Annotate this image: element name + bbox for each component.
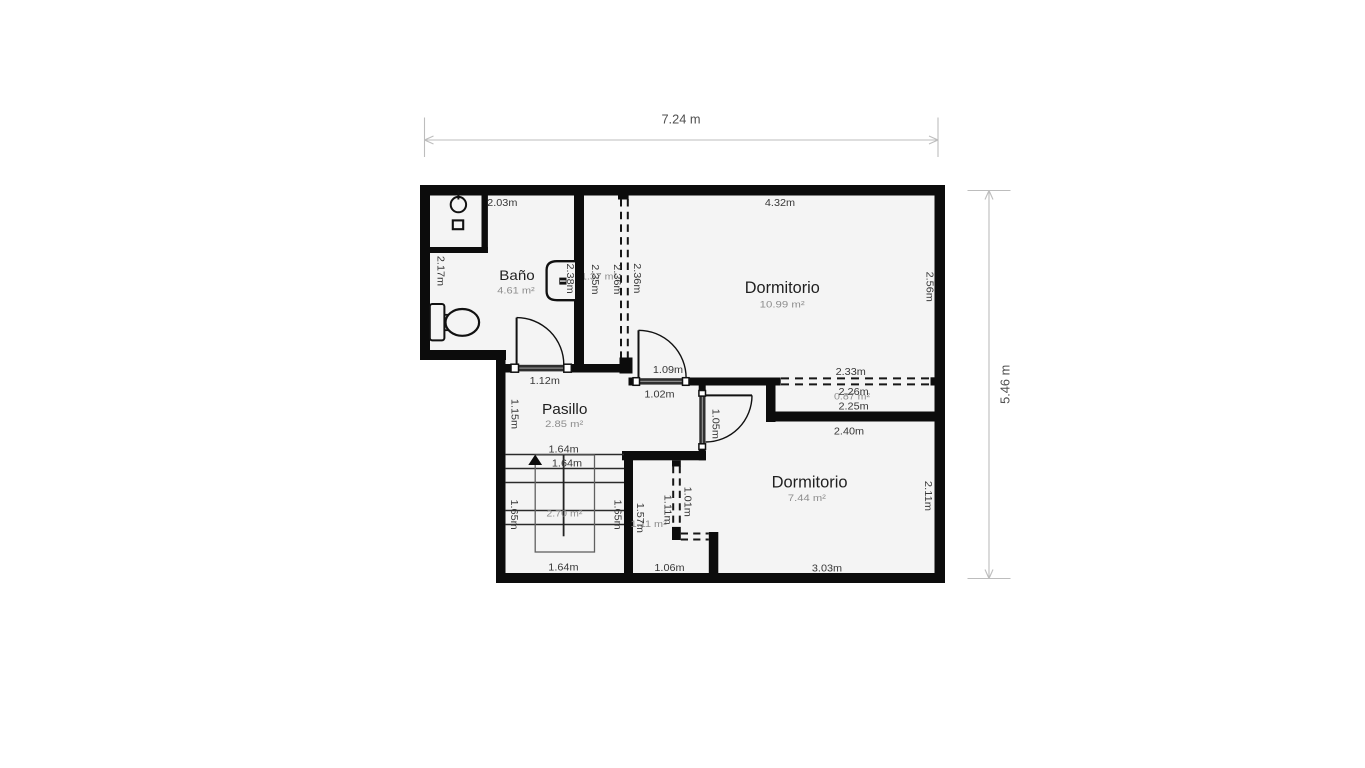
svg-text:10.99 m²: 10.99 m²	[760, 299, 806, 310]
svg-text:2.36m: 2.36m	[611, 264, 622, 294]
svg-text:2.35m: 2.35m	[589, 264, 600, 294]
svg-text:1.64m: 1.64m	[548, 563, 578, 574]
svg-text:2.11m: 2.11m	[922, 481, 933, 511]
svg-text:3.03m: 3.03m	[812, 564, 842, 575]
svg-text:2.56m: 2.56m	[923, 272, 934, 302]
svg-text:1.65m: 1.65m	[612, 500, 623, 530]
svg-text:1.09m: 1.09m	[653, 365, 683, 376]
svg-text:2.38m: 2.38m	[564, 264, 575, 294]
svg-text:7.44 m²: 7.44 m²	[788, 493, 827, 504]
svg-text:1.57m: 1.57m	[634, 503, 645, 533]
svg-text:5.46 m: 5.46 m	[998, 365, 1013, 404]
svg-text:1.11m: 1.11m	[662, 495, 673, 525]
svg-text:1.02m: 1.02m	[644, 389, 674, 400]
svg-text:Pasillo: Pasillo	[542, 401, 587, 418]
svg-text:1.05m: 1.05m	[709, 409, 720, 439]
svg-text:2.25m: 2.25m	[839, 401, 869, 412]
svg-text:2.85 m²: 2.85 m²	[545, 419, 584, 430]
svg-text:Dormitorio: Dormitorio	[772, 473, 848, 492]
svg-text:2.03m: 2.03m	[487, 198, 517, 209]
svg-text:4.61 m²: 4.61 m²	[497, 286, 535, 297]
svg-text:2.36m: 2.36m	[631, 263, 642, 293]
svg-text:Dormitorio: Dormitorio	[745, 279, 820, 297]
svg-text:7.24 m: 7.24 m	[661, 112, 700, 127]
svg-text:2.40m: 2.40m	[834, 426, 864, 437]
svg-text:1.65m: 1.65m	[508, 499, 519, 529]
svg-text:4.32m: 4.32m	[765, 198, 795, 209]
svg-text:2.17m: 2.17m	[435, 256, 446, 286]
svg-text:2.26m: 2.26m	[839, 387, 869, 398]
svg-text:2.70 m²: 2.70 m²	[546, 508, 583, 519]
svg-text:2.33m: 2.33m	[836, 367, 866, 378]
svg-text:1.12m: 1.12m	[530, 376, 560, 387]
svg-text:1.64m: 1.64m	[549, 445, 579, 456]
svg-text:1.06m: 1.06m	[654, 563, 684, 574]
svg-text:1.01m: 1.01m	[682, 487, 693, 517]
svg-text:Baño: Baño	[499, 268, 534, 283]
svg-text:1.15m: 1.15m	[509, 399, 520, 429]
svg-text:1.64m: 1.64m	[552, 459, 582, 470]
